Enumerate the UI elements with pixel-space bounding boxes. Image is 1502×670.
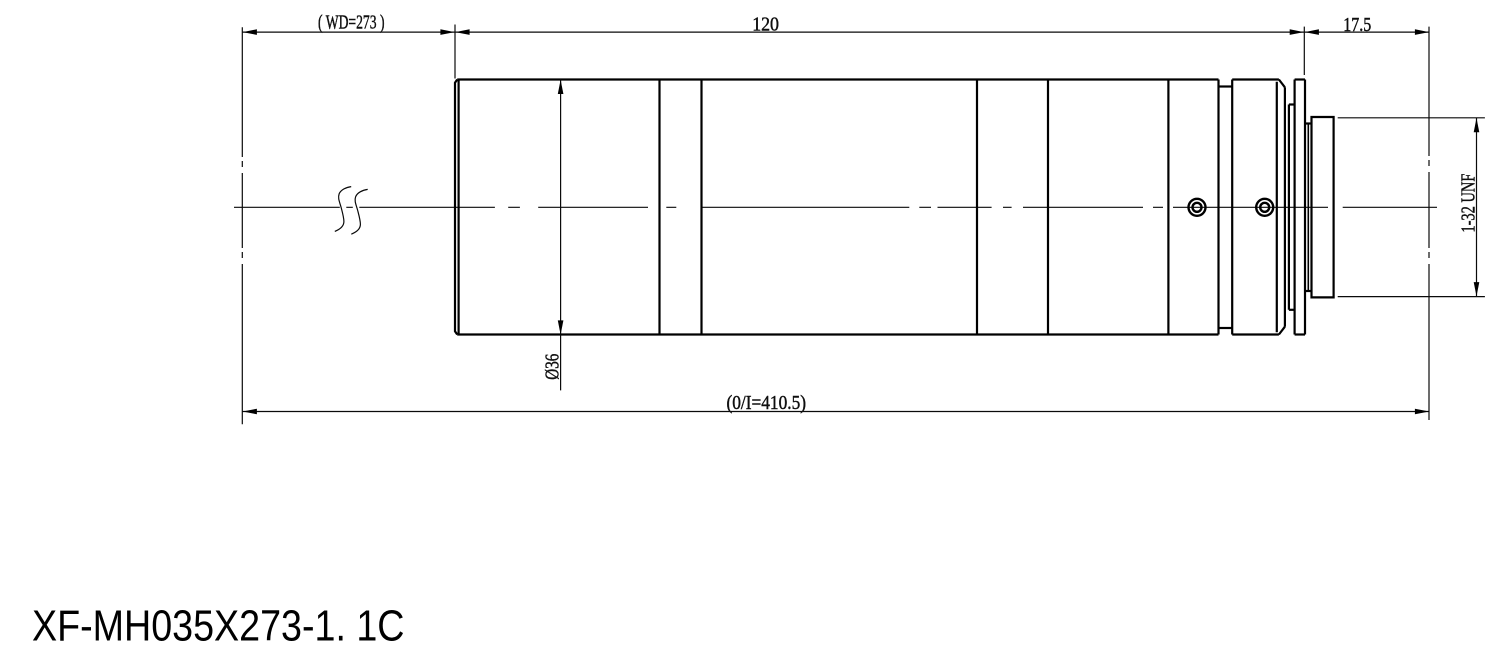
svg-text:17.5: 17.5 [1343, 14, 1371, 36]
svg-text:(0/I=410.5): (0/I=410.5) [727, 392, 807, 414]
svg-text:Ø36: Ø36 [541, 354, 563, 380]
svg-text:120: 120 [752, 14, 779, 36]
svg-text:( WD=273 ): ( WD=273 ) [318, 12, 385, 34]
svg-text:1-32 UNF: 1-32 UNF [1457, 174, 1479, 233]
svg-text:XF-MH035X273-1. 1C: XF-MH035X273-1. 1C [32, 602, 405, 651]
